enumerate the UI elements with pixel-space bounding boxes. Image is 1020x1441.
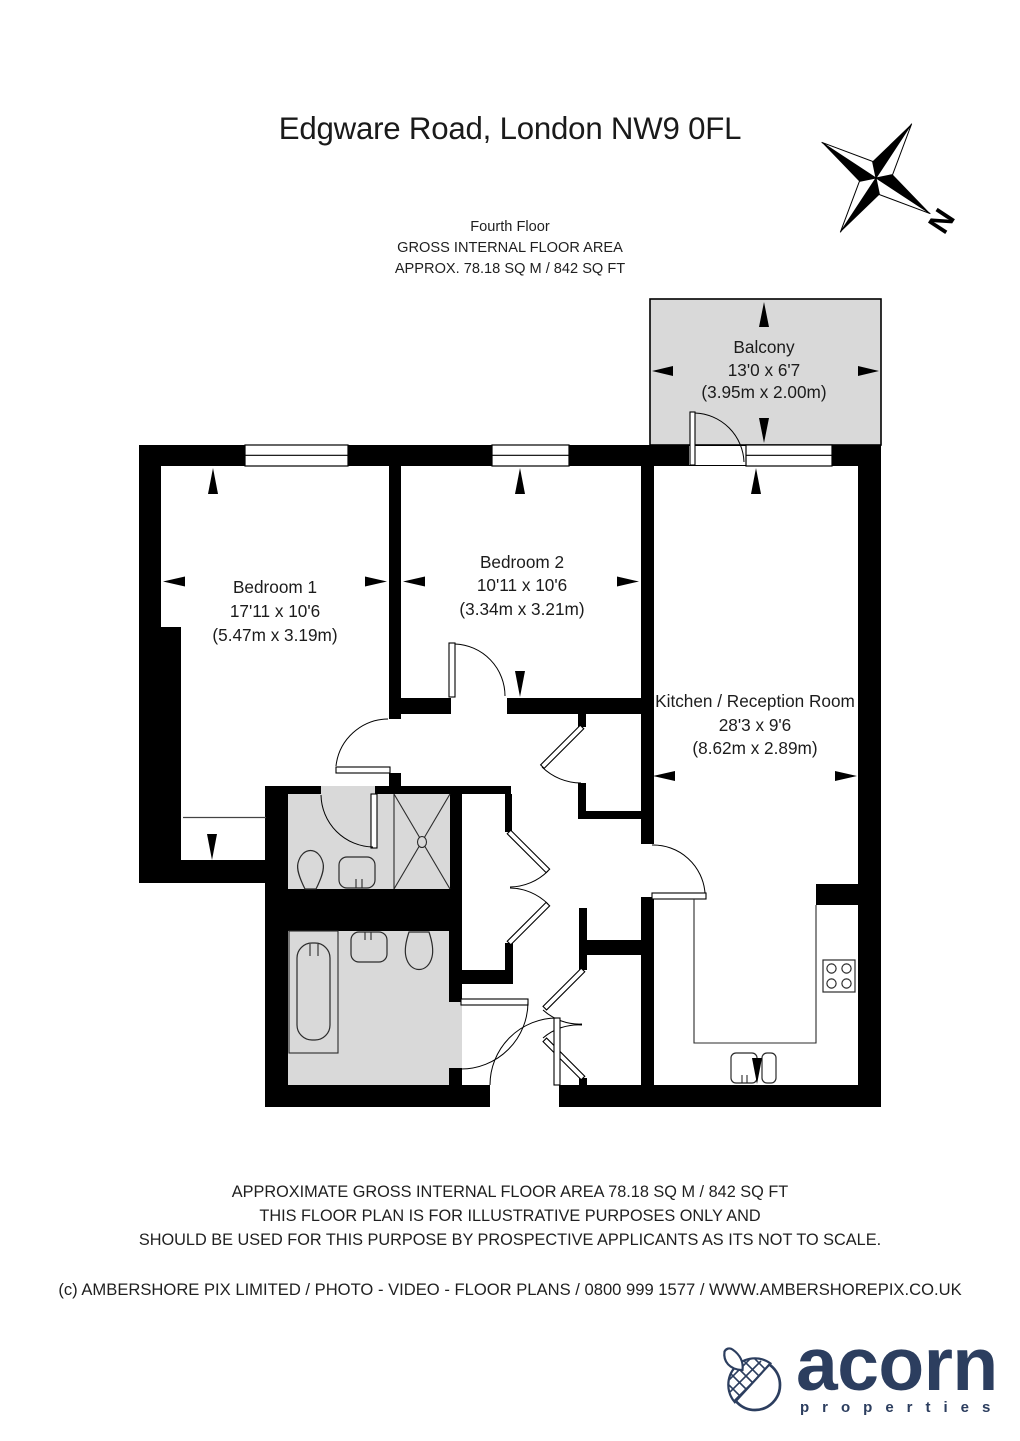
svg-text:APPROX. 78.18 SQ M / 842 SQ FT: APPROX. 78.18 SQ M / 842 SQ FT: [395, 261, 625, 277]
svg-text:APPROXIMATE GROSS INTERNAL FLO: APPROXIMATE GROSS INTERNAL FLOOR AREA 78…: [232, 1183, 788, 1201]
svg-text:THIS FLOOR PLAN IS FOR ILLUSTR: THIS FLOOR PLAN IS FOR ILLUSTRATIVE PURP…: [259, 1207, 760, 1225]
svg-text:Bedroom 2: Bedroom 2: [480, 552, 564, 572]
svg-text:(3.95m x 2.00m): (3.95m x 2.00m): [701, 382, 826, 402]
svg-text:(8.62m x 2.89m): (8.62m x 2.89m): [692, 738, 817, 758]
svg-text:17'11 x 10'6: 17'11 x 10'6: [230, 601, 320, 621]
svg-text:SHOULD BE USED FOR THIS PURPOS: SHOULD BE USED FOR THIS PURPOSE BY PROSP…: [139, 1231, 881, 1249]
svg-text:Edgware Road, London NW9 0FL: Edgware Road, London NW9 0FL: [279, 111, 742, 146]
svg-text:Kitchen / Reception Room: Kitchen / Reception Room: [655, 691, 855, 711]
svg-text:13'0 x 6'7: 13'0 x 6'7: [728, 360, 801, 380]
svg-text:properties: properties: [800, 1399, 1003, 1416]
svg-text:10'11 x 10'6: 10'11 x 10'6: [477, 575, 567, 595]
svg-text:28'3 x 9'6: 28'3 x 9'6: [719, 715, 792, 735]
svg-text:Bedroom 1: Bedroom 1: [233, 577, 317, 597]
svg-text:GROSS INTERNAL FLOOR AREA: GROSS INTERNAL FLOOR AREA: [397, 240, 623, 256]
svg-text:Fourth Floor: Fourth Floor: [470, 219, 550, 235]
svg-text:(5.47m x 3.19m): (5.47m x 3.19m): [212, 625, 337, 645]
svg-text:(c) AMBERSHORE PIX LIMITED / P: (c) AMBERSHORE PIX LIMITED / PHOTO - VID…: [58, 1280, 961, 1299]
svg-text:acorn: acorn: [796, 1322, 998, 1406]
svg-text:Balcony: Balcony: [733, 337, 795, 357]
svg-text:(3.34m x 3.21m): (3.34m x 3.21m): [459, 599, 584, 619]
